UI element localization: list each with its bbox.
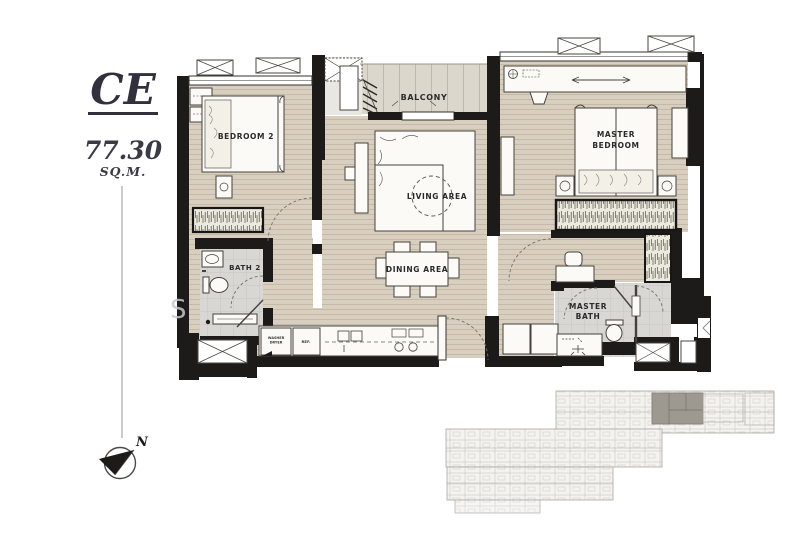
floorplan-drawing: BEDROOM 2 MASTER BEDROOM BALCONY LIVING … (0, 0, 800, 533)
balcony-floor (360, 64, 487, 114)
master-builtin-right (672, 108, 688, 158)
bath2-label: BATH 2 (229, 264, 261, 272)
master-headboard-cabinet (556, 200, 676, 230)
washer-label-2: DRYER (270, 341, 283, 345)
compass-north-label: N (135, 435, 149, 450)
ac-panel-bottomright (636, 343, 670, 362)
washer-label-1: WASHER (268, 336, 285, 340)
bedroom2-label: BEDROOM 2 (218, 132, 274, 141)
ac-panel-topright-1 (558, 38, 600, 54)
ac-panel-bottomleft (198, 340, 247, 363)
master-nightstand-left (556, 176, 574, 196)
master-bed (575, 105, 657, 196)
master-nightstand-right (658, 176, 676, 196)
title-block: CE 77.30 SQ.M. (84, 65, 163, 438)
shaft-box (681, 341, 696, 363)
balcony-label: BALCONY (401, 93, 448, 102)
ac-panel-topleft-2 (256, 58, 300, 73)
keyplan-tail (455, 500, 540, 513)
master-bedroom-label-2: BEDROOM (592, 141, 639, 150)
unit-area-value: 77.30 (84, 136, 163, 165)
floorplan-page: BEDROOM 2 MASTER BEDROOM BALCONY LIVING … (0, 0, 800, 533)
right-door-notch (698, 318, 710, 338)
entry-closet-1 (503, 324, 530, 354)
unit-area-unit: SQ.M. (100, 164, 147, 179)
master-bath-toilet-icon (606, 320, 623, 342)
keyplan-wing-lower (447, 467, 613, 500)
master-bath-label-1: MASTER (569, 302, 607, 311)
ac-panel-topleft-1 (197, 60, 233, 75)
bath2-toilet-icon (203, 277, 228, 293)
keyplan (446, 391, 774, 513)
master-closet (645, 234, 671, 282)
living-area-label: LIVING AREA (407, 192, 467, 201)
master-bedroom-label-1: MASTER (597, 130, 635, 139)
unit-code: CE (90, 65, 156, 114)
title-underline (88, 112, 158, 115)
ac-panel-topright-2 (648, 36, 694, 52)
living-sofa (375, 131, 475, 231)
watermark-text: S (170, 295, 187, 325)
master-bath-label-2: BATH (576, 312, 601, 321)
bedroom2-dresser (193, 208, 263, 232)
compass-icon: N (99, 435, 149, 479)
kitchen-counter (259, 326, 438, 356)
master-builtin-left (501, 137, 514, 195)
fridge-label: REF. (302, 339, 312, 344)
master-bath-vanity (557, 334, 602, 356)
bedroom2-nightstand (216, 176, 232, 198)
keyplan-unit-highlight (652, 393, 703, 424)
entry-closet-2 (531, 324, 558, 354)
dining-area-label: DINING AREA (386, 265, 448, 274)
